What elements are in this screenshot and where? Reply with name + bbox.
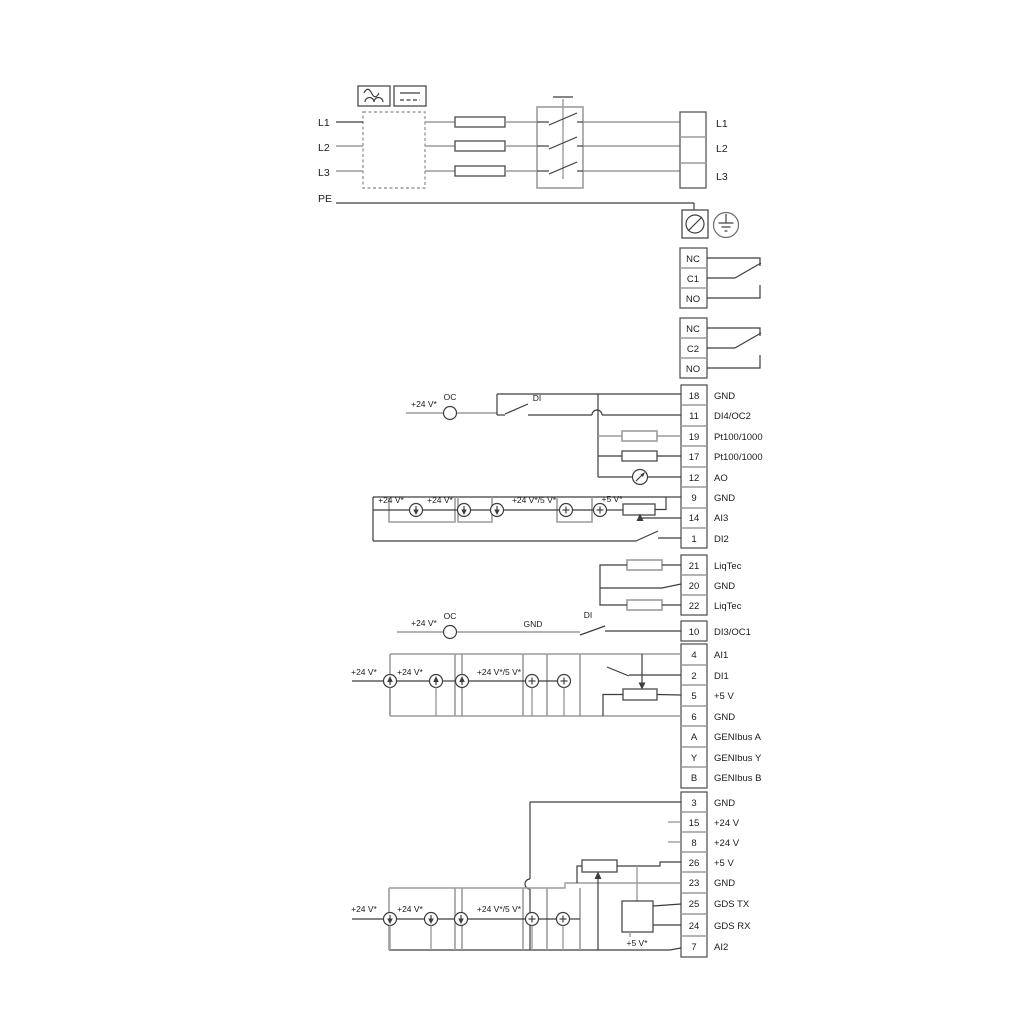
v24-label: +24 V* [378,495,404,505]
v5-label: +5 V* [626,938,648,948]
di4-oc2-circuit: +24 V* OC DI [406,392,681,485]
term-8: 8 [691,838,696,849]
open-collector-icon [444,626,457,639]
potentiometer-icon [582,860,617,872]
term-7: 7 [691,942,696,953]
term-5-label: +5 V [714,691,734,702]
voltage-source-icon [560,504,573,517]
term-4: 4 [691,650,696,661]
mains-terminal-l1: L1 [716,118,728,130]
term-b: B [691,773,697,784]
ai3-di2-circuit: +24 V* +24 V* +24 V*/5 V* +5 V* [373,494,681,541]
relay2-nc: NC [686,324,700,335]
term-20: 20 [689,581,700,592]
di3-oc1-circuit: +24 V* OC GND DI [397,610,681,639]
dc-symbol-icon [394,86,426,106]
term-12: 12 [689,473,700,484]
liqtec-resistor-icon [627,600,662,610]
term-19: 19 [689,432,700,443]
current-source-icon [410,504,423,517]
current-source-icon [455,913,468,926]
v24-label: +24 V* [427,495,453,505]
term-25-label: GDS TX [714,899,750,910]
relay1-nc: NC [686,254,700,265]
current-source-icon [384,675,397,717]
relay1-contact-icon [707,258,761,298]
term-9: 9 [691,493,696,504]
pt100-resistor-icon [622,451,657,461]
oc-label: OC [444,392,457,402]
term-24-label: GDS RX [714,921,751,932]
liqtec-sensor-circuit [600,560,681,610]
mains-terminal-l3: L3 [716,171,728,183]
power-label-l1: L1 [318,117,330,129]
di-switch-icon [580,626,605,635]
voltage-source-icon [557,913,570,951]
term-5: 5 [691,691,696,702]
di-label: DI [533,393,542,403]
relay2-no: NO [686,364,700,375]
oc-label: OC [444,611,457,621]
current-source-icon [456,675,469,688]
fuse-icon [455,141,505,151]
term-14: 14 [689,513,700,524]
main-switch-icon [537,97,583,188]
terminal-strip-b: 18 GND 11 DI4/OC2 19 Pt100/1000 17 Pt100… [681,385,763,548]
relay1-no: NO [686,294,700,305]
wiring-diagram: L1 L2 L3 PE [0,0,1024,1024]
term-3-label: GND [714,798,735,809]
term-23-label: GND [714,878,735,889]
mains-terminal-l2: L2 [716,143,728,155]
wiring-diagram-page: L1 L2 L3 PE [0,0,1024,1024]
term-21: 21 [689,561,700,572]
liqtec-resistor-icon [627,560,662,570]
v24-label: +24 V* [397,904,423,914]
wire-hop [592,410,602,415]
power-section: L1 L2 L3 PE [318,86,739,238]
current-source-icon [491,504,504,517]
power-label-pe: PE [318,193,332,205]
current-source-icon [384,913,397,951]
term-18-label: GND [714,391,735,402]
di-label: DI [584,610,593,620]
ground-icon [714,213,739,238]
term-10-label: DI3/OC1 [714,627,751,638]
term-15: 15 [689,818,700,829]
v24-label: +24 V* [411,399,437,409]
term-9-label: GND [714,493,735,504]
term-12-label: AO [714,473,728,484]
term-25: 25 [689,899,700,910]
voltage-source-icon [526,675,539,717]
earth-connection [336,203,739,238]
term-y: Y [691,753,698,764]
term-8-label: +24 V [714,838,740,849]
term-y-label: GENIbus Y [714,753,762,764]
term-24: 24 [689,921,700,932]
ai2-gds-circuit: +5 V* +24 V* +24 V* +24 V*/5 V* [351,802,681,950]
v24-5-label: +24 V*/5 V* [512,495,557,505]
terminal-strip-e: 3 GND 15 +24 V 8 +24 V 26 +5 V 23 GND 25… [681,792,751,957]
term-22-label: LiqTec [714,601,742,612]
relay1-block: NC C1 NO [680,248,761,308]
di1-switch-icon [607,667,629,676]
term-19-label: Pt100/1000 [714,432,763,443]
voltage-source-icon [594,504,607,517]
term-15-label: +24 V [714,818,740,829]
fuse-icons [425,117,537,176]
v24-5-label: +24 V*/5 V* [477,904,522,914]
relay1-c1: C1 [687,274,699,285]
term-2: 2 [691,671,696,682]
potentiometer-icon [623,689,657,700]
term-a-label: GENIbus A [714,732,762,743]
terminal-strip-c: 21 LiqTec 20 GND 22 LiqTec [600,555,742,615]
term-20-label: GND [714,581,735,592]
ac-symbol-icon [358,86,390,106]
term-17: 17 [689,452,700,463]
fuse-icon [455,117,505,127]
relay2-block: NC C2 NO [680,318,761,378]
term-11-label: DI4/OC2 [714,411,751,422]
v24-label: +24 V* [351,667,377,677]
term-6-label: GND [714,712,735,723]
v5-label: +5 V* [601,494,623,504]
term-18: 18 [689,391,700,402]
di-switch-icon [505,404,528,414]
term-1: 1 [691,534,696,545]
v24-5-label: +24 V*/5 V* [477,667,522,677]
voltage-source-icon [526,913,539,951]
power-label-l2: L2 [318,142,330,154]
term-7-label: AI2 [714,942,728,953]
screw-terminal-icon [682,210,708,238]
gds-sensor-box [622,901,653,932]
term-14-label: AI3 [714,513,728,524]
term-b-label: GENIbus B [714,773,762,784]
ai1-di1-circuit: +24 V* +24 V* +24 V*/5 V* [351,654,681,716]
term-4-label: AI1 [714,650,728,661]
di2-switch-icon [636,531,658,541]
term-11: 11 [689,411,699,422]
v24-label: +24 V* [397,667,423,677]
terminal-strip-d2: 4 AI1 2 DI1 5 +5 V 6 GND A GENIbus A Y G… [681,644,762,788]
term-26-label: +5 V [714,858,734,869]
v24-label: +24 V* [411,618,437,628]
power-label-l3: L3 [318,167,330,179]
term-3: 3 [691,798,696,809]
fuse-icon [455,166,505,176]
term-17-label: Pt100/1000 [714,452,763,463]
current-source-icon [458,504,471,517]
relay2-contact-icon [707,328,761,368]
term-21-label: LiqTec [714,561,742,572]
term-6: 6 [691,712,696,723]
term-10: 10 [689,627,700,638]
term-2-label: DI1 [714,671,729,682]
current-source-icon [430,675,443,717]
term-23: 23 [689,878,700,889]
pt100-resistor-icon [622,431,657,441]
term-22: 22 [689,601,700,612]
mains-terminal-block: L1 L2 L3 [680,112,728,188]
relay2-c2: C2 [687,344,699,355]
open-collector-icon [444,407,457,420]
term-a: A [691,732,698,743]
term-1-label: DI2 [714,534,729,545]
voltage-source-icon [558,675,571,717]
v24-label: +24 V* [351,904,377,914]
potentiometer-icon [623,504,655,515]
term-26: 26 [689,858,700,869]
ao-meter-icon [633,470,648,485]
gnd-label: GND [524,619,543,629]
current-source-icon [425,913,438,951]
converter-filter-box [363,112,425,188]
